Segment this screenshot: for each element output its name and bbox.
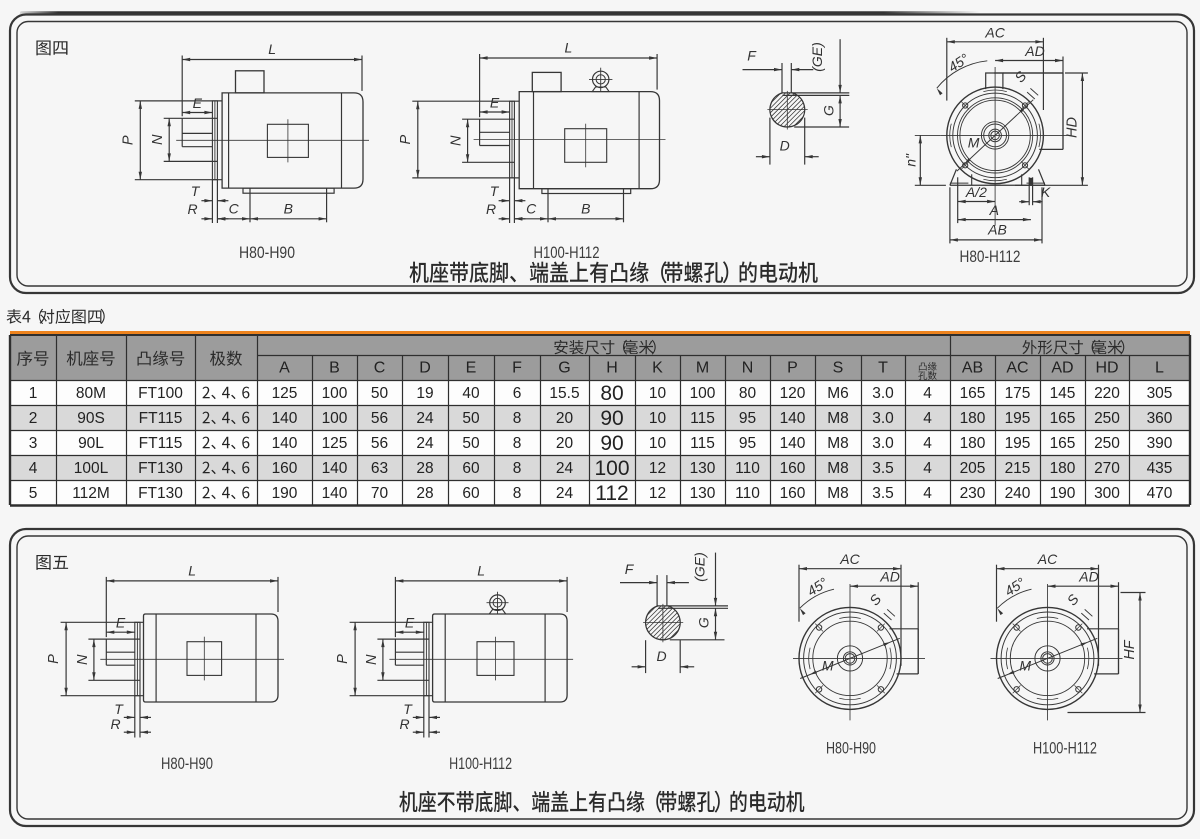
svg-text:H: H	[606, 360, 618, 377]
svg-text:240: 240	[1005, 485, 1031, 502]
svg-text:2: 2	[29, 410, 38, 427]
svg-text:FT130: FT130	[138, 485, 183, 502]
svg-text:T: T	[114, 701, 124, 717]
svg-text:F: F	[625, 561, 635, 577]
svg-text:190: 190	[1050, 485, 1076, 502]
svg-text:AB: AB	[987, 221, 1007, 237]
svg-text:12: 12	[649, 485, 666, 502]
svg-text:10: 10	[649, 385, 667, 402]
svg-text:205: 205	[960, 460, 986, 477]
svg-text:E: E	[466, 360, 477, 377]
svg-text:H80-H112: H80-H112	[960, 248, 1021, 266]
svg-text:M6: M6	[827, 385, 849, 402]
svg-text:20: 20	[556, 410, 574, 427]
svg-text:80: 80	[739, 385, 757, 402]
svg-text:AB: AB	[962, 360, 983, 377]
svg-text:470: 470	[1147, 485, 1173, 502]
svg-text:160: 160	[272, 460, 298, 477]
svg-text:100: 100	[690, 385, 716, 402]
svg-text:N: N	[742, 360, 754, 377]
svg-text:165: 165	[1050, 435, 1076, 452]
svg-text:H100-H112: H100-H112	[1033, 740, 1097, 758]
svg-text:180: 180	[1050, 460, 1076, 477]
svg-text:100: 100	[322, 410, 348, 427]
svg-text:M8: M8	[827, 435, 849, 452]
svg-text:3.0: 3.0	[872, 435, 894, 452]
svg-text:90L: 90L	[78, 435, 104, 452]
svg-text:140: 140	[780, 410, 806, 427]
svg-text:S: S	[833, 360, 844, 377]
svg-text:R: R	[187, 201, 197, 217]
svg-text:435: 435	[1147, 460, 1173, 477]
svg-text:56: 56	[371, 435, 388, 452]
svg-text:T: T	[490, 183, 500, 199]
svg-text:160: 160	[780, 485, 806, 502]
svg-text:H80-H90: H80-H90	[161, 755, 213, 773]
svg-text:M8: M8	[827, 460, 849, 477]
svg-text:M: M	[968, 134, 980, 150]
svg-text:(GE): (GE)	[692, 552, 708, 582]
svg-text:D: D	[780, 138, 790, 154]
svg-text:AC: AC	[1006, 360, 1028, 377]
svg-text:80M: 80M	[76, 385, 106, 402]
svg-text:R: R	[486, 201, 496, 217]
svg-text:C: C	[526, 200, 537, 216]
svg-text:115: 115	[690, 435, 715, 452]
svg-text:H80-H90: H80-H90	[239, 244, 295, 262]
svg-text:HD: HD	[1095, 360, 1118, 377]
svg-text:A: A	[279, 360, 290, 377]
svg-text:AC: AC	[1037, 551, 1058, 567]
svg-text:4: 4	[923, 385, 932, 402]
svg-text:L: L	[477, 562, 485, 578]
svg-text:50: 50	[462, 410, 480, 427]
svg-text:D: D	[657, 648, 667, 664]
svg-text:60: 60	[462, 460, 480, 477]
svg-text:AD: AD	[1051, 360, 1073, 377]
svg-text:L: L	[268, 41, 276, 57]
svg-text:80: 80	[600, 382, 623, 405]
svg-text:B: B	[581, 200, 590, 216]
svg-text:P: P	[787, 360, 798, 377]
svg-text:4: 4	[923, 435, 932, 452]
svg-text:AD: AD	[1078, 569, 1098, 585]
svg-text:24: 24	[556, 460, 574, 477]
svg-text:165: 165	[1050, 410, 1076, 427]
svg-text:M: M	[696, 360, 709, 377]
svg-text:M: M	[822, 658, 834, 674]
svg-text:8: 8	[513, 460, 522, 477]
svg-text:4: 4	[923, 410, 932, 427]
svg-text:FT115: FT115	[139, 410, 183, 427]
svg-text:FT115: FT115	[139, 435, 183, 452]
svg-text:305: 305	[1147, 385, 1173, 402]
svg-text:28: 28	[416, 485, 433, 502]
svg-text:N: N	[449, 135, 465, 146]
svg-text:195: 195	[1005, 410, 1031, 427]
svg-text:n": n"	[902, 153, 918, 167]
svg-text:E: E	[490, 95, 500, 111]
svg-text:D: D	[419, 360, 431, 377]
svg-text:G: G	[558, 360, 570, 377]
svg-text:N: N	[150, 134, 166, 145]
svg-text:125: 125	[322, 435, 348, 452]
svg-text:95: 95	[739, 435, 756, 452]
svg-text:60: 60	[462, 485, 480, 502]
svg-text:F: F	[512, 360, 522, 377]
svg-text:4: 4	[29, 460, 38, 477]
svg-text:19: 19	[416, 385, 433, 402]
svg-text:3.0: 3.0	[872, 385, 894, 402]
svg-text:P: P	[46, 654, 62, 664]
svg-text:160: 160	[780, 460, 806, 477]
svg-text:12: 12	[649, 460, 666, 477]
svg-text:C: C	[374, 360, 386, 377]
svg-text:112M: 112M	[72, 485, 110, 502]
svg-text:95: 95	[739, 410, 756, 427]
svg-text:P: P	[335, 654, 351, 664]
svg-text:215: 215	[1005, 460, 1031, 477]
svg-text:140: 140	[272, 435, 298, 452]
svg-text:15.5: 15.5	[549, 385, 579, 402]
svg-text:H100-H112: H100-H112	[449, 755, 512, 773]
svg-text:6: 6	[513, 385, 522, 402]
svg-text:C: C	[229, 200, 240, 216]
svg-text:130: 130	[690, 485, 716, 502]
svg-text:L: L	[188, 562, 196, 578]
svg-text:230: 230	[960, 485, 986, 502]
svg-text:1: 1	[29, 385, 38, 402]
svg-text:L: L	[1155, 360, 1164, 377]
svg-text:FT130: FT130	[138, 460, 183, 477]
svg-text:10: 10	[649, 410, 667, 427]
svg-text:H80-H90: H80-H90	[826, 740, 876, 758]
svg-text:AD: AD	[1024, 43, 1044, 59]
svg-text:A: A	[989, 202, 999, 218]
svg-text:3.5: 3.5	[872, 485, 894, 502]
svg-text:100: 100	[322, 385, 348, 402]
svg-text:112: 112	[595, 482, 628, 505]
svg-text:AC: AC	[839, 551, 860, 567]
svg-text:110: 110	[735, 485, 760, 502]
svg-text:4: 4	[923, 460, 932, 477]
svg-text:HD: HD	[1064, 117, 1080, 138]
svg-text:140: 140	[272, 410, 298, 427]
svg-text:P: P	[398, 134, 414, 144]
svg-text:90: 90	[600, 432, 623, 455]
svg-text:24: 24	[416, 435, 434, 452]
svg-text:56: 56	[371, 410, 388, 427]
svg-text:90S: 90S	[77, 410, 105, 427]
svg-text:B: B	[329, 360, 340, 377]
svg-text:G: G	[696, 617, 712, 628]
svg-text:130: 130	[690, 460, 716, 477]
svg-text:4: 4	[923, 485, 932, 502]
svg-text:P: P	[120, 135, 136, 145]
svg-text:250: 250	[1094, 410, 1120, 427]
svg-text:140: 140	[322, 485, 348, 502]
svg-text:220: 220	[1094, 385, 1120, 402]
svg-text:R: R	[399, 716, 409, 732]
svg-text:190: 190	[272, 485, 298, 502]
svg-text:145: 145	[1050, 385, 1076, 402]
svg-text:360: 360	[1147, 410, 1173, 427]
svg-text:(GE): (GE)	[809, 42, 825, 72]
svg-text:90: 90	[600, 407, 623, 430]
svg-text:A/2: A/2	[965, 184, 987, 200]
svg-text:390: 390	[1147, 435, 1173, 452]
svg-text:20: 20	[556, 435, 574, 452]
svg-text:140: 140	[780, 435, 806, 452]
svg-text:R: R	[110, 716, 120, 732]
svg-text:24: 24	[556, 485, 574, 502]
svg-text:120: 120	[780, 385, 806, 402]
svg-text:3.5: 3.5	[872, 460, 894, 477]
svg-text:E: E	[193, 95, 203, 111]
svg-text:50: 50	[462, 435, 480, 452]
svg-text:250: 250	[1094, 435, 1120, 452]
svg-text:AC: AC	[984, 24, 1005, 40]
svg-text:M: M	[1019, 658, 1031, 674]
svg-text:100L: 100L	[74, 460, 109, 477]
svg-text:100: 100	[594, 457, 629, 480]
svg-text:8: 8	[513, 410, 522, 427]
svg-text:24: 24	[416, 410, 434, 427]
svg-text:70: 70	[371, 485, 389, 502]
svg-text:3.0: 3.0	[872, 410, 894, 427]
svg-text:180: 180	[960, 410, 986, 427]
svg-text:10: 10	[649, 435, 667, 452]
svg-text:N: N	[364, 654, 380, 665]
svg-text:195: 195	[1005, 435, 1031, 452]
svg-text:AD: AD	[879, 569, 899, 585]
svg-text:40: 40	[462, 385, 480, 402]
svg-text:T: T	[191, 183, 201, 199]
svg-text:300: 300	[1094, 485, 1120, 502]
svg-text:8: 8	[513, 485, 522, 502]
svg-text:110: 110	[735, 460, 760, 477]
svg-text:M8: M8	[827, 485, 849, 502]
svg-text:50: 50	[371, 385, 389, 402]
svg-text:3: 3	[29, 435, 38, 452]
svg-text:270: 270	[1094, 460, 1120, 477]
svg-text:F: F	[747, 48, 757, 64]
svg-text:5: 5	[29, 485, 38, 502]
svg-text:125: 125	[272, 385, 298, 402]
svg-text:140: 140	[322, 460, 348, 477]
svg-text:K: K	[652, 360, 663, 377]
svg-text:H100-H112: H100-H112	[534, 244, 600, 262]
svg-text:180: 180	[960, 435, 986, 452]
svg-text:T: T	[403, 701, 413, 717]
svg-text:175: 175	[1005, 385, 1031, 402]
svg-text:N: N	[75, 654, 91, 665]
svg-text:165: 165	[960, 385, 986, 402]
svg-text:FT100: FT100	[138, 385, 183, 402]
svg-text:G: G	[821, 105, 837, 116]
svg-text:HF: HF	[1122, 639, 1138, 659]
svg-text:63: 63	[371, 460, 388, 477]
svg-text:T: T	[878, 360, 888, 377]
svg-text:L: L	[565, 40, 573, 56]
svg-text:115: 115	[690, 410, 715, 427]
svg-text:28: 28	[416, 460, 433, 477]
svg-text:B: B	[284, 200, 293, 216]
svg-text:8: 8	[513, 435, 522, 452]
svg-text:M8: M8	[827, 410, 849, 427]
